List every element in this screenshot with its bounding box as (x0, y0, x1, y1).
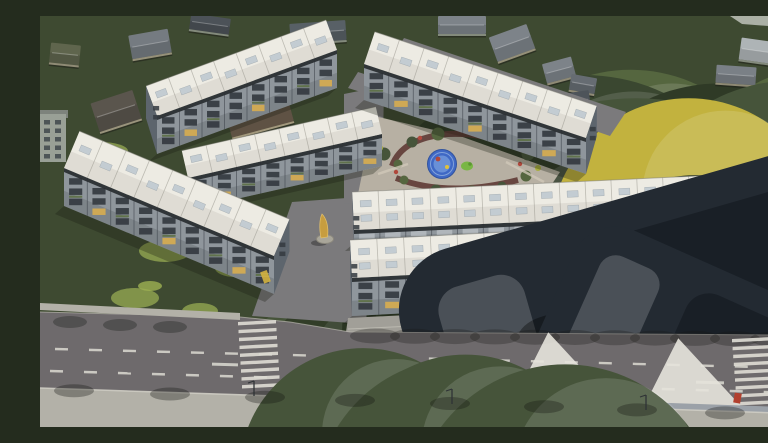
window (275, 96, 287, 102)
roof-skylight (386, 199, 397, 206)
balcony-planter (567, 155, 581, 157)
window (493, 134, 507, 140)
window (162, 127, 174, 133)
window (252, 84, 264, 90)
tree-shadow (150, 388, 190, 401)
balcony-planter (252, 102, 264, 104)
shrub (400, 176, 409, 185)
window (468, 106, 482, 112)
play-equipment-red (436, 157, 441, 162)
window (419, 99, 433, 105)
neighbor-house (715, 65, 756, 89)
neighbor-house (438, 16, 486, 38)
window (230, 103, 242, 109)
roof-skylight (358, 248, 369, 255)
building-window (44, 137, 50, 142)
balcony-planter (209, 254, 222, 256)
window (468, 116, 482, 122)
roof-skylight (567, 191, 578, 198)
building-window (44, 120, 50, 125)
lit-window (468, 125, 482, 131)
window (297, 88, 309, 94)
window (139, 208, 152, 214)
roof-skylight (438, 197, 449, 204)
window (186, 237, 199, 243)
window (92, 188, 105, 194)
window (207, 101, 219, 107)
building-window (44, 154, 50, 159)
lit-window (252, 105, 264, 111)
window (232, 247, 245, 253)
window (69, 178, 82, 184)
window (207, 121, 219, 127)
lit-window (394, 101, 408, 107)
window (567, 149, 581, 155)
gap-window (411, 231, 427, 236)
window (493, 114, 507, 120)
end-window (353, 216, 359, 221)
aerial-render (40, 16, 768, 427)
window (162, 217, 175, 223)
end-window (279, 243, 285, 248)
end-window (153, 115, 159, 120)
flower-bed (394, 170, 398, 174)
gap-window (359, 233, 375, 238)
window (394, 81, 408, 87)
window (518, 122, 532, 128)
balcony-planter (419, 106, 433, 108)
roof-skylight (438, 211, 449, 218)
window (162, 117, 174, 123)
window (116, 208, 129, 214)
balcony-planter (468, 123, 482, 125)
roof-skylight (593, 189, 604, 196)
tree-shadow (335, 394, 375, 407)
roof-skylight (359, 262, 370, 269)
window (297, 68, 309, 74)
window (256, 256, 269, 262)
window (518, 132, 532, 138)
window (339, 147, 352, 152)
window (242, 186, 255, 191)
window (209, 257, 222, 263)
lit-window (542, 150, 556, 156)
roof-skylight (516, 207, 527, 214)
neighbor-house (49, 42, 81, 69)
tree-shadow (617, 403, 657, 416)
window (339, 164, 352, 169)
window (291, 166, 304, 171)
roof-skylight (387, 213, 398, 220)
window (339, 155, 352, 160)
roof-skylight (360, 200, 371, 207)
window (444, 117, 458, 123)
roof-skylight (541, 192, 552, 199)
window (186, 227, 199, 233)
grass-patch (138, 281, 162, 291)
roof-skylight (412, 198, 423, 205)
window (320, 70, 332, 76)
house-wall (438, 34, 486, 36)
roof-skylight (361, 215, 372, 222)
lit-window (232, 267, 245, 273)
window (320, 59, 332, 65)
window (385, 292, 399, 298)
window (252, 94, 264, 100)
gap-window (488, 227, 504, 232)
window (315, 161, 328, 166)
roof-skylight (413, 212, 424, 219)
window (370, 83, 384, 89)
window (394, 91, 408, 97)
window (358, 283, 372, 289)
play-equipment-yellow (445, 165, 449, 169)
window (567, 139, 581, 145)
building-window (44, 129, 50, 134)
window (542, 131, 556, 137)
lit-window (363, 159, 376, 164)
roof-skylight (542, 206, 553, 213)
roof-skylight (490, 209, 501, 216)
balcony-planter (162, 235, 175, 237)
window (218, 183, 231, 188)
end-window (351, 273, 357, 278)
end-window (279, 252, 285, 256)
building-window (55, 120, 61, 125)
roof-skylight (385, 247, 396, 254)
window (207, 111, 219, 117)
roof-skylight (619, 188, 630, 195)
window (518, 142, 532, 148)
window (297, 78, 309, 84)
window (567, 158, 581, 164)
end-window (590, 127, 596, 131)
window (363, 150, 376, 155)
balcony-planter (162, 135, 174, 137)
window (542, 140, 556, 146)
tree-shadow (53, 316, 87, 328)
building-window (55, 129, 61, 134)
tree-shadow (54, 384, 94, 397)
building-window (55, 154, 61, 159)
roof-skylight (464, 210, 475, 217)
window (232, 257, 245, 263)
window (218, 174, 231, 179)
flower-bed (418, 136, 422, 140)
lit-window (320, 80, 332, 86)
window (266, 172, 279, 177)
tree-shadow (524, 400, 564, 413)
window (185, 109, 197, 115)
gap-window (463, 229, 479, 234)
scene-canvas (40, 16, 768, 427)
window (162, 138, 174, 144)
window (266, 163, 279, 168)
window (315, 152, 328, 157)
window (275, 86, 287, 92)
window (139, 218, 152, 224)
end-window (153, 106, 159, 111)
window (230, 92, 242, 98)
window (162, 228, 175, 234)
window (69, 188, 82, 194)
apartment-building (40, 110, 68, 162)
window (358, 293, 372, 299)
window (116, 218, 129, 224)
balcony-planter (69, 196, 82, 198)
roof-skylight (515, 193, 526, 200)
balcony-planter (358, 300, 372, 302)
balcony-planter (242, 183, 255, 185)
window (242, 169, 255, 174)
lit-window (291, 175, 304, 180)
balcony-planter (207, 118, 219, 120)
balcony-planter (291, 172, 304, 174)
lit-window (185, 129, 197, 135)
lit-window (385, 302, 399, 308)
grass-patch (111, 288, 159, 308)
window (444, 98, 458, 104)
tree-shadow (245, 391, 285, 404)
window (493, 124, 507, 130)
window (242, 177, 255, 182)
roof-skylight (412, 245, 423, 252)
window (444, 108, 458, 114)
window (419, 90, 433, 96)
building-window (55, 137, 61, 142)
end-window (353, 225, 359, 230)
window (315, 170, 328, 175)
tree-shadow (153, 321, 187, 333)
end-window (590, 136, 596, 141)
tree-shadow (430, 397, 470, 410)
window (209, 237, 222, 243)
window (363, 141, 376, 146)
window (358, 303, 372, 309)
window (275, 76, 287, 82)
roof-skylight (464, 195, 475, 202)
slide-detail (468, 162, 472, 166)
balcony-planter (518, 139, 532, 141)
window (419, 109, 433, 115)
tree-shadow (705, 406, 745, 419)
window (186, 248, 199, 254)
window (230, 113, 242, 119)
gap-window (437, 230, 453, 235)
gap-window (385, 232, 401, 237)
shrub (407, 137, 418, 148)
window (116, 198, 129, 204)
lit-window (162, 238, 175, 244)
window (266, 181, 279, 186)
tree-shadow (103, 319, 137, 331)
window (92, 198, 105, 204)
roof-skylight (386, 261, 397, 268)
window (139, 228, 152, 234)
window (370, 93, 384, 99)
building-window (55, 146, 61, 151)
balcony-planter (297, 85, 309, 87)
balcony-planter (116, 215, 129, 217)
balcony-planter (370, 90, 384, 92)
roof-skylight (489, 194, 500, 201)
building-wall (40, 114, 66, 162)
roof-shade (438, 25, 486, 34)
window (209, 247, 222, 253)
end-window (351, 264, 357, 269)
lit-window (92, 209, 105, 215)
window (69, 199, 82, 205)
balcony-planter (339, 161, 352, 163)
window (385, 281, 399, 287)
window (185, 119, 197, 125)
building-window (44, 146, 50, 151)
window (370, 73, 384, 79)
window (291, 158, 304, 163)
